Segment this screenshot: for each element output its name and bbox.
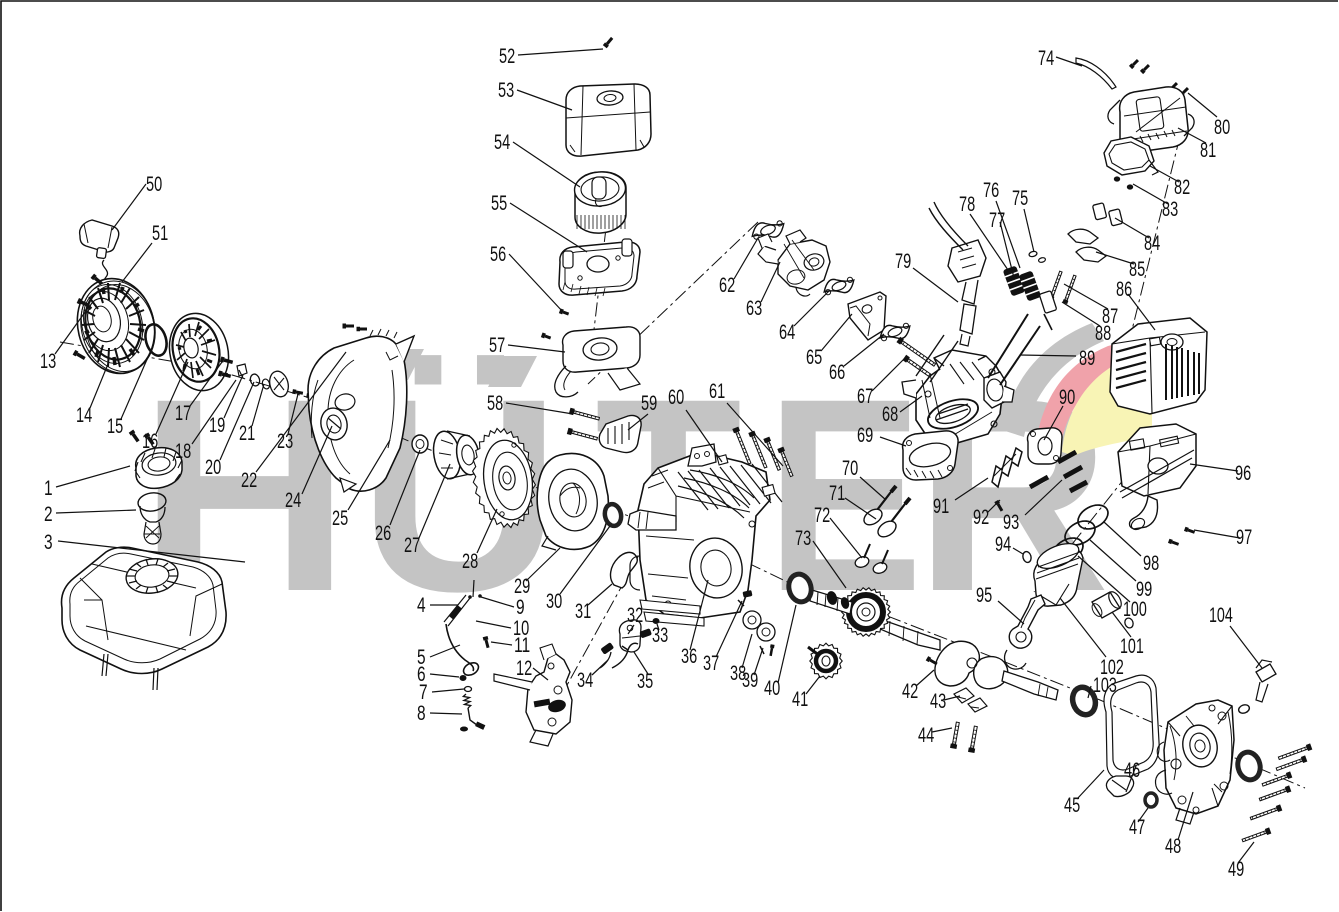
svg-text:14: 14 — [76, 403, 92, 427]
svg-text:81: 81 — [1200, 138, 1216, 162]
svg-text:22: 22 — [241, 468, 257, 492]
svg-text:50: 50 — [146, 172, 162, 196]
svg-text:62: 62 — [719, 273, 735, 297]
svg-text:57: 57 — [489, 333, 505, 357]
svg-text:72: 72 — [814, 503, 830, 527]
svg-text:19: 19 — [209, 413, 225, 437]
svg-text:94: 94 — [995, 532, 1011, 556]
svg-text:1: 1 — [44, 476, 53, 500]
svg-text:104: 104 — [1209, 603, 1233, 627]
svg-text:61: 61 — [709, 379, 725, 403]
svg-text:2: 2 — [44, 502, 53, 526]
svg-text:17: 17 — [175, 401, 191, 425]
svg-text:79: 79 — [895, 249, 911, 273]
svg-text:42: 42 — [902, 679, 918, 703]
svg-text:3: 3 — [44, 530, 53, 554]
svg-text:12: 12 — [516, 656, 532, 680]
svg-text:18: 18 — [175, 439, 191, 463]
svg-text:60: 60 — [668, 385, 684, 409]
svg-text:74: 74 — [1038, 46, 1054, 70]
svg-text:31: 31 — [575, 599, 591, 623]
svg-text:52: 52 — [499, 44, 515, 68]
svg-text:44: 44 — [918, 723, 934, 747]
svg-text:69: 69 — [857, 423, 873, 447]
svg-text:51: 51 — [152, 221, 168, 245]
svg-text:56: 56 — [490, 242, 506, 266]
svg-text:23: 23 — [277, 429, 293, 453]
svg-text:33: 33 — [652, 623, 668, 647]
svg-text:73: 73 — [795, 526, 811, 550]
svg-text:70: 70 — [842, 456, 858, 480]
svg-text:71: 71 — [829, 481, 845, 505]
svg-text:80: 80 — [1214, 115, 1230, 139]
svg-text:47: 47 — [1129, 815, 1145, 839]
svg-text:8: 8 — [417, 701, 426, 725]
svg-text:103: 103 — [1093, 673, 1117, 697]
svg-text:78: 78 — [959, 192, 975, 216]
svg-text:82: 82 — [1174, 175, 1190, 199]
svg-text:90: 90 — [1059, 385, 1075, 409]
svg-text:93: 93 — [1003, 510, 1019, 534]
svg-text:88: 88 — [1095, 321, 1111, 345]
svg-text:39: 39 — [742, 668, 758, 692]
svg-text:66: 66 — [829, 360, 845, 384]
svg-text:68: 68 — [882, 402, 898, 426]
svg-text:28: 28 — [462, 549, 478, 573]
svg-text:95: 95 — [976, 583, 992, 607]
svg-text:84: 84 — [1144, 231, 1160, 255]
svg-text:43: 43 — [930, 689, 946, 713]
svg-text:36: 36 — [681, 644, 697, 668]
svg-text:100: 100 — [1123, 597, 1147, 621]
svg-text:13: 13 — [40, 349, 56, 373]
svg-text:92: 92 — [973, 505, 989, 529]
svg-text:58: 58 — [487, 391, 503, 415]
svg-text:20: 20 — [205, 455, 221, 479]
svg-text:75: 75 — [1012, 186, 1028, 210]
svg-text:96: 96 — [1235, 461, 1251, 485]
svg-text:35: 35 — [637, 669, 653, 693]
svg-text:55: 55 — [491, 191, 507, 215]
svg-text:53: 53 — [498, 78, 514, 102]
svg-text:27: 27 — [404, 533, 420, 557]
svg-text:25: 25 — [332, 506, 348, 530]
svg-text:21: 21 — [239, 421, 255, 445]
svg-text:45: 45 — [1064, 793, 1080, 817]
svg-text:41: 41 — [792, 687, 808, 711]
svg-text:11: 11 — [514, 633, 530, 657]
svg-text:46: 46 — [1124, 758, 1140, 782]
svg-text:89: 89 — [1079, 346, 1095, 370]
svg-text:59: 59 — [641, 391, 657, 415]
svg-text:15: 15 — [107, 414, 123, 438]
svg-text:98: 98 — [1143, 551, 1159, 575]
svg-text:65: 65 — [806, 345, 822, 369]
svg-text:32: 32 — [627, 603, 643, 627]
svg-text:83: 83 — [1162, 197, 1178, 221]
svg-text:64: 64 — [779, 320, 795, 344]
svg-text:86: 86 — [1116, 277, 1132, 301]
svg-text:97: 97 — [1236, 525, 1252, 549]
svg-text:48: 48 — [1165, 834, 1181, 858]
svg-text:16: 16 — [142, 429, 158, 453]
svg-text:30: 30 — [546, 589, 562, 613]
svg-text:40: 40 — [764, 676, 780, 700]
svg-text:24: 24 — [285, 488, 301, 512]
svg-text:26: 26 — [375, 521, 391, 545]
svg-text:49: 49 — [1228, 857, 1244, 881]
svg-text:37: 37 — [703, 651, 719, 675]
svg-text:4: 4 — [417, 593, 426, 617]
svg-text:29: 29 — [514, 574, 530, 598]
svg-text:63: 63 — [746, 296, 762, 320]
svg-text:67: 67 — [857, 384, 873, 408]
svg-text:76: 76 — [983, 178, 999, 202]
svg-text:34: 34 — [577, 668, 593, 692]
svg-text:77: 77 — [989, 208, 1005, 232]
svg-text:54: 54 — [494, 130, 510, 154]
svg-text:91: 91 — [933, 494, 949, 518]
